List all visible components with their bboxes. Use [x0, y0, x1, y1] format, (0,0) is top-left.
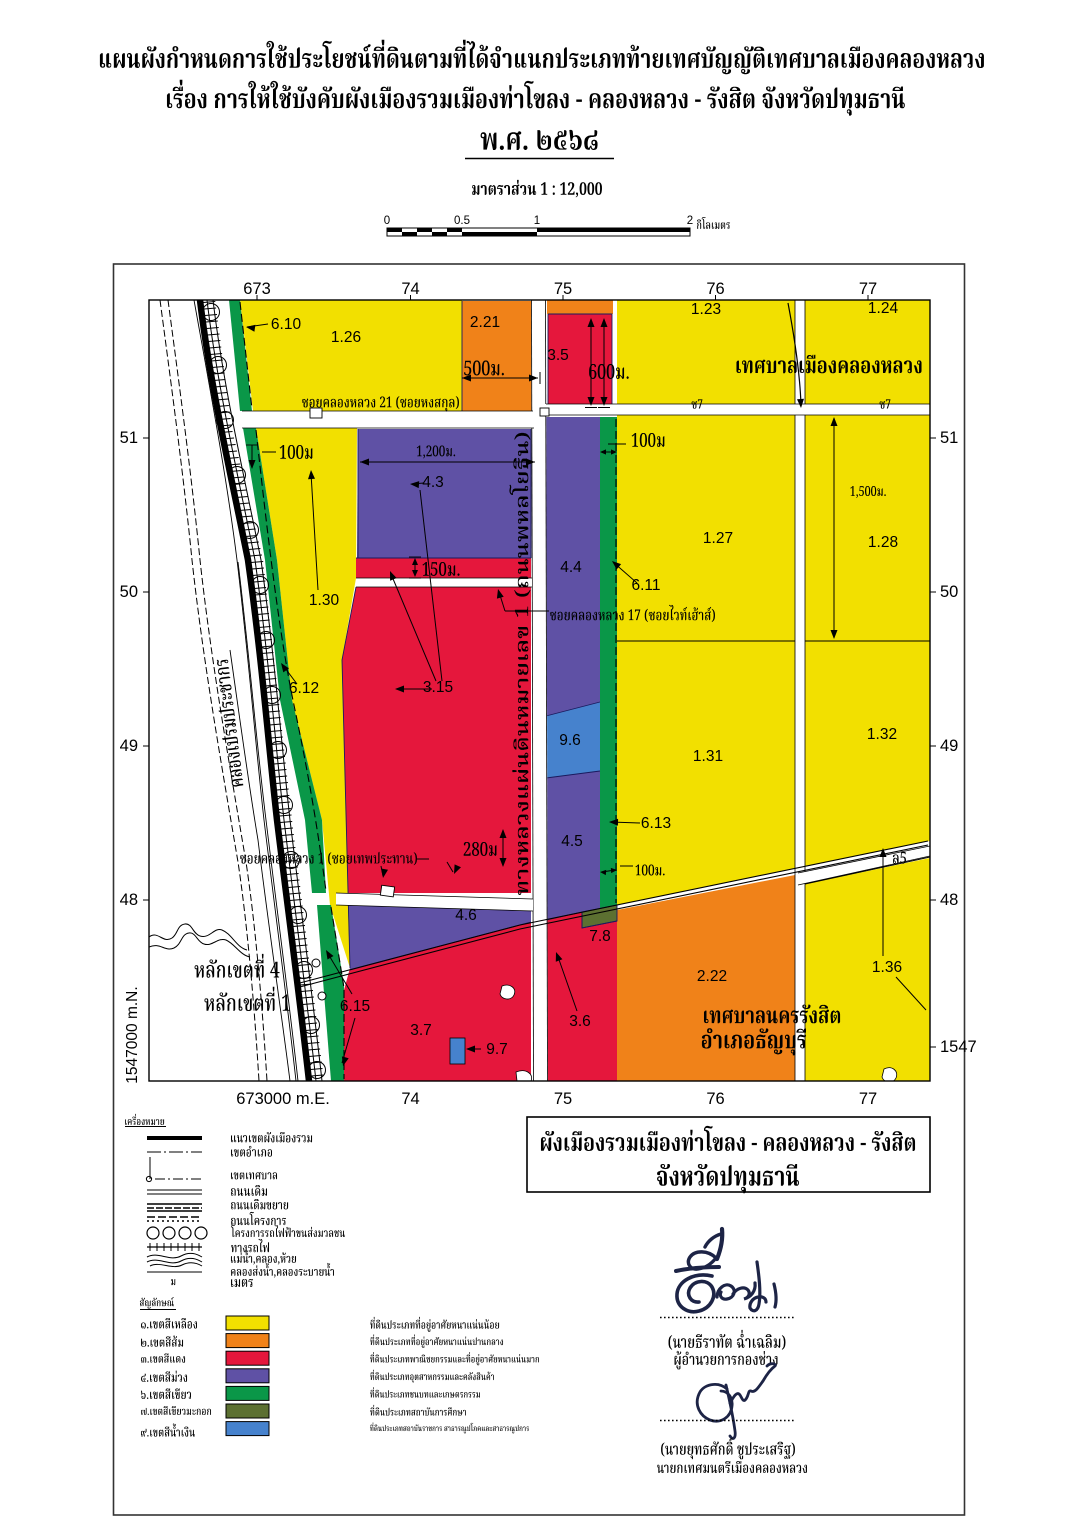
svg-text:673000 m.E.: 673000 m.E.: [236, 1090, 330, 1108]
svg-text:1.32: 1.32: [867, 726, 897, 743]
svg-text:9.6: 9.6: [559, 732, 581, 749]
svg-text:51: 51: [940, 429, 958, 447]
svg-text:1.36: 1.36: [872, 959, 902, 976]
svg-text:6.10: 6.10: [271, 316, 302, 333]
svg-text:1.28: 1.28: [868, 534, 898, 551]
svg-text:2: 2: [687, 215, 693, 227]
svg-text:77: 77: [859, 1090, 877, 1108]
svg-text:50: 50: [940, 583, 958, 601]
svg-text:1547000 m.N.: 1547000 m.N.: [124, 986, 141, 1083]
svg-text:9.7: 9.7: [486, 1041, 508, 1058]
svg-text:3.7: 3.7: [410, 1022, 432, 1039]
svg-text:4.3: 4.3: [422, 474, 444, 491]
svg-text:1.24: 1.24: [868, 300, 899, 317]
svg-text:0.5: 0.5: [454, 215, 470, 227]
svg-text:75: 75: [554, 1090, 572, 1108]
svg-text:4.6: 4.6: [455, 907, 477, 924]
svg-text:1: 1: [534, 215, 540, 227]
svg-text:1.27: 1.27: [703, 530, 733, 547]
svg-text:3.15: 3.15: [423, 679, 453, 696]
svg-text:1.30: 1.30: [309, 592, 340, 609]
svg-text:51: 51: [120, 429, 138, 447]
svg-text:74: 74: [401, 1090, 419, 1108]
svg-text:6.11: 6.11: [631, 577, 660, 594]
svg-text:6.15: 6.15: [340, 998, 370, 1015]
svg-text:3.5: 3.5: [547, 347, 569, 364]
svg-text:48: 48: [940, 891, 958, 909]
svg-text:4.5: 4.5: [561, 833, 583, 850]
svg-text:49: 49: [120, 737, 138, 755]
svg-text:6.13: 6.13: [641, 815, 671, 832]
svg-text:48: 48: [120, 891, 138, 909]
svg-text:1.26: 1.26: [331, 329, 361, 346]
svg-text:50: 50: [120, 583, 138, 601]
svg-text:1.23: 1.23: [691, 301, 721, 318]
svg-text:4.4: 4.4: [560, 559, 582, 576]
svg-text:2.21: 2.21: [470, 314, 500, 331]
svg-text:1547: 1547: [940, 1038, 977, 1056]
svg-text:2.22: 2.22: [697, 968, 727, 985]
svg-text:76: 76: [706, 1090, 724, 1108]
svg-text:6.12: 6.12: [289, 680, 319, 697]
svg-text:1.31: 1.31: [693, 748, 723, 765]
svg-text:49: 49: [940, 737, 958, 755]
svg-text:0: 0: [384, 215, 390, 227]
svg-text:7.8: 7.8: [589, 928, 611, 945]
svg-text:3.6: 3.6: [569, 1013, 591, 1030]
